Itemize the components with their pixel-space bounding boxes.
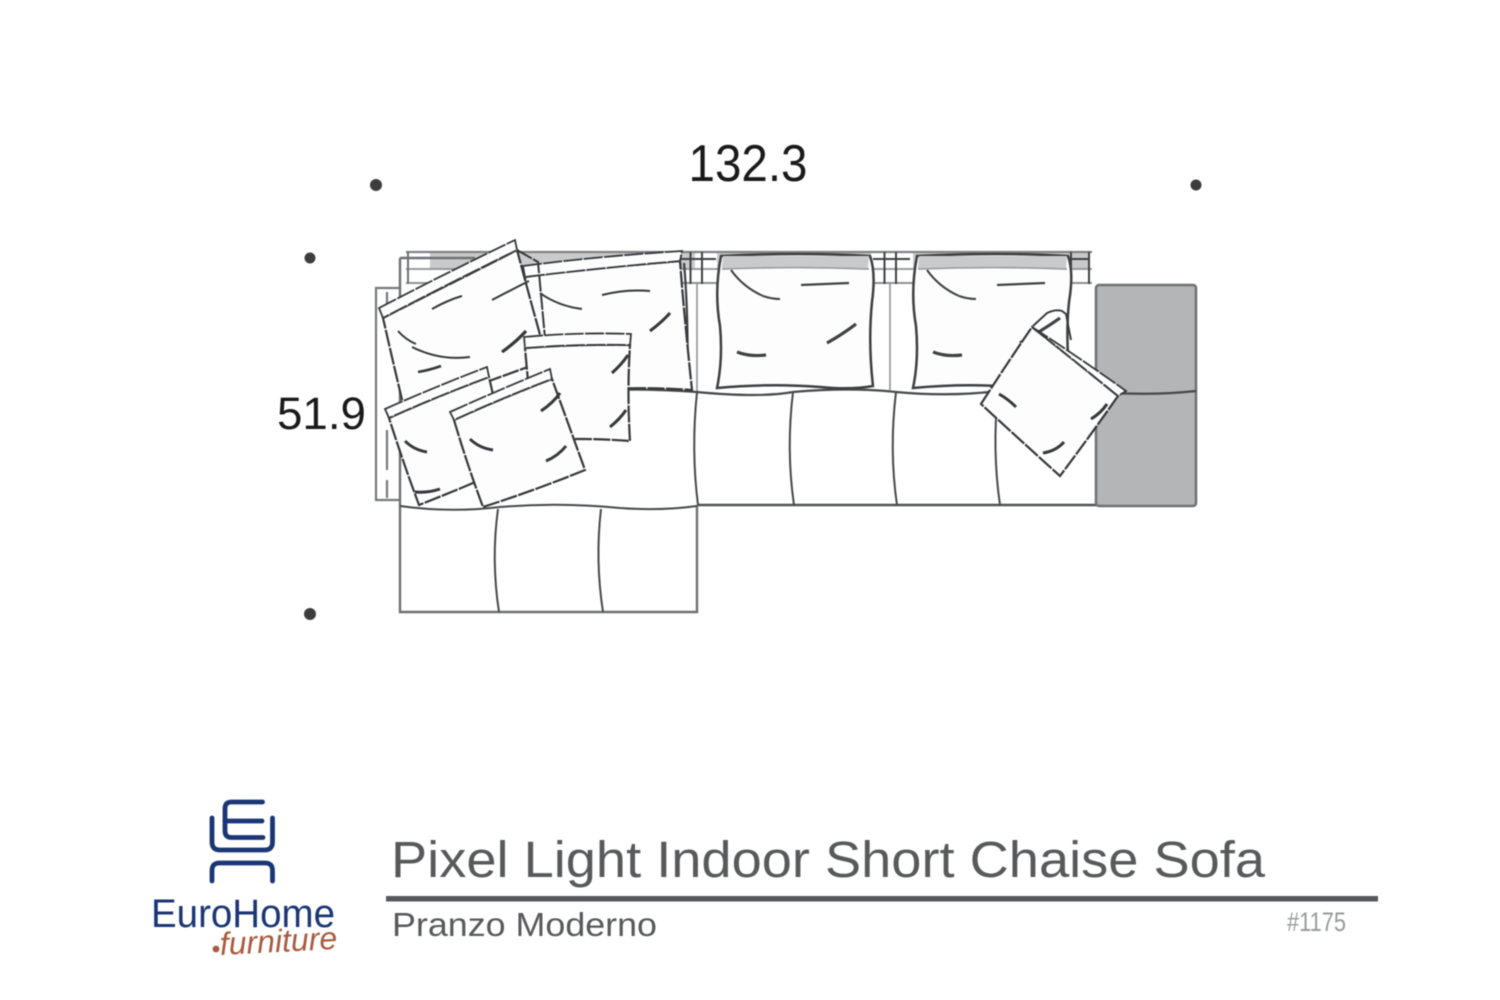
svg-text:51.9: 51.9 — [277, 388, 366, 439]
svg-text:Pixel Light Indoor Short Chais: Pixel Light Indoor Short Chaise Sofa — [391, 831, 1266, 888]
svg-text:furniture: furniture — [219, 920, 338, 962]
svg-text:#1175: #1175 — [1287, 907, 1346, 937]
svg-text:Pranzo Moderno: Pranzo Moderno — [392, 906, 657, 943]
svg-text:132.3: 132.3 — [689, 135, 808, 193]
